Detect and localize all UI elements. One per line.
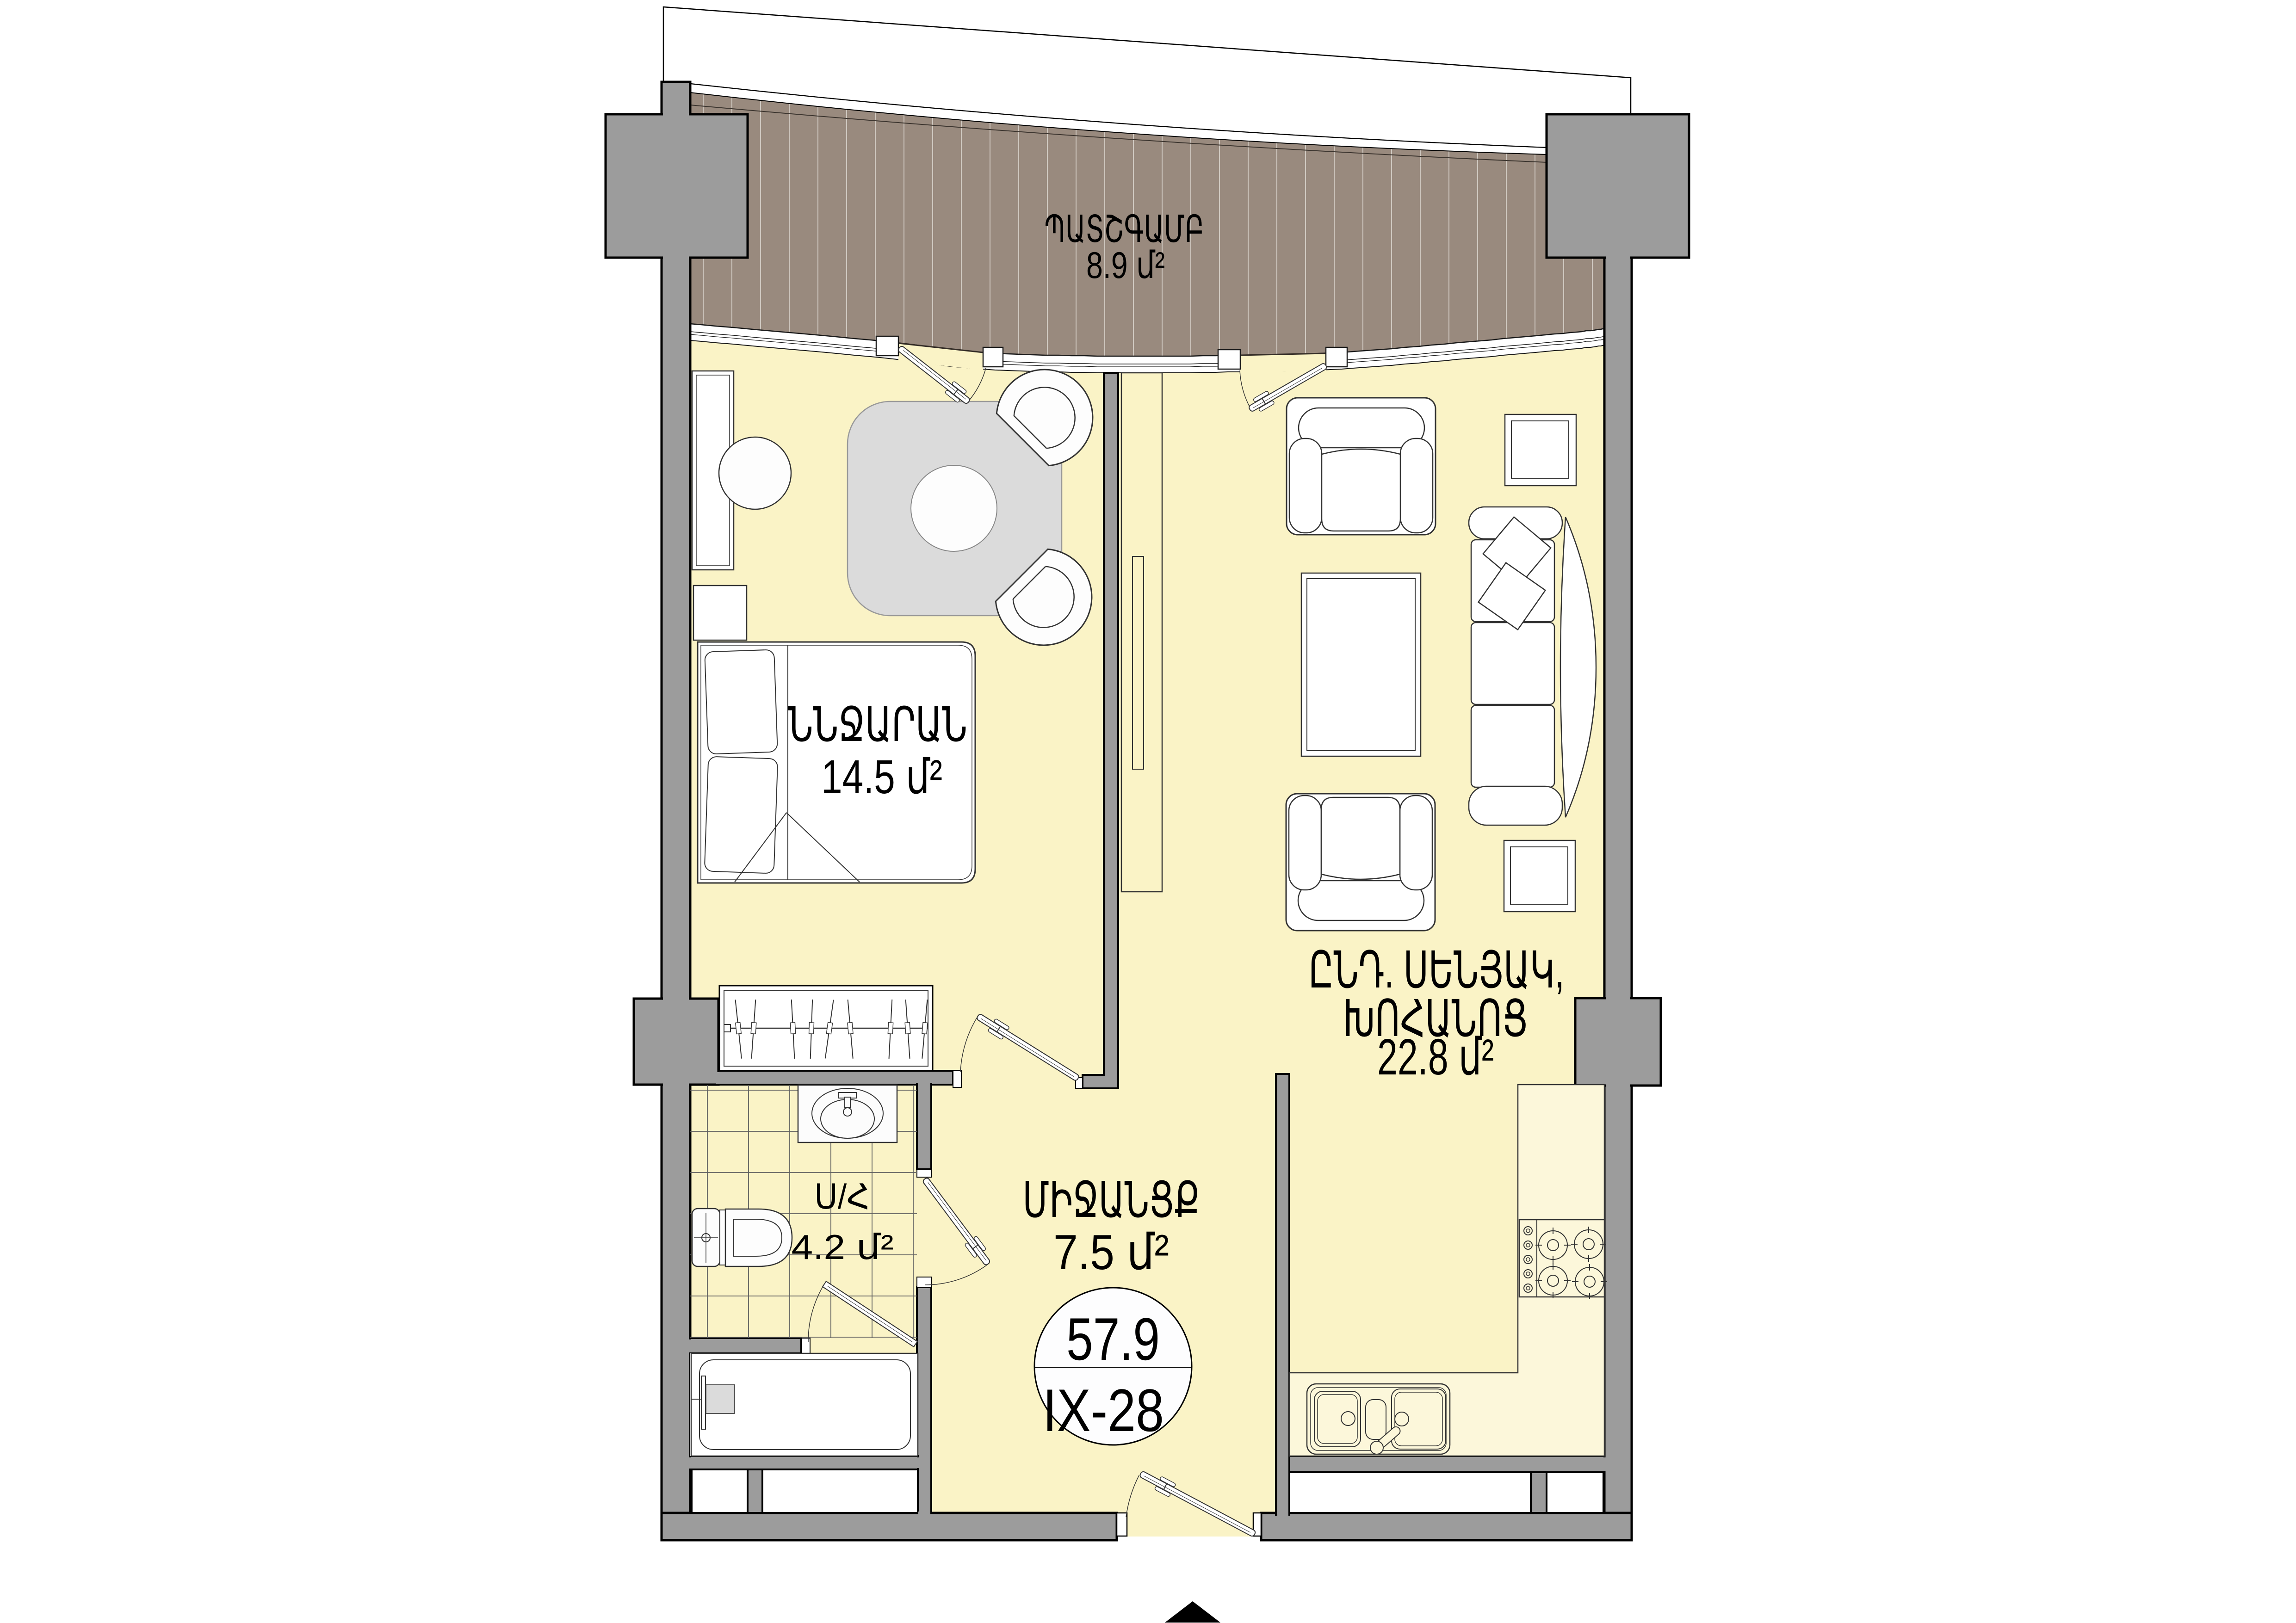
svg-text:8.9 մ²: 8.9 մ² xyxy=(1086,245,1165,286)
svg-text:ՄԻՋԱՆՑՔ: ՄԻՋԱՆՑՔ xyxy=(1023,1172,1200,1228)
svg-text:7.5 մ²: 7.5 մ² xyxy=(1053,1224,1169,1280)
svg-text:14.5 մ²: 14.5 մ² xyxy=(821,750,942,803)
svg-text:22.8 մ²: 22.8 մ² xyxy=(1377,1029,1494,1086)
svg-text:57.9: 57.9 xyxy=(1066,1305,1160,1373)
svg-text:ՆՆՋԱՐԱՆ: ՆՆՋԱՐԱՆ xyxy=(788,698,967,751)
svg-text:IX-28: IX-28 xyxy=(1043,1376,1164,1444)
svg-text:ՊԱՏՇԳԱՄԲ: ՊԱՏՇԳԱՄԲ xyxy=(1045,209,1204,250)
svg-text:4.2 մ²: 4.2 մ² xyxy=(792,1228,894,1266)
svg-text:Ս/Հ: Ս/Հ xyxy=(814,1177,870,1216)
